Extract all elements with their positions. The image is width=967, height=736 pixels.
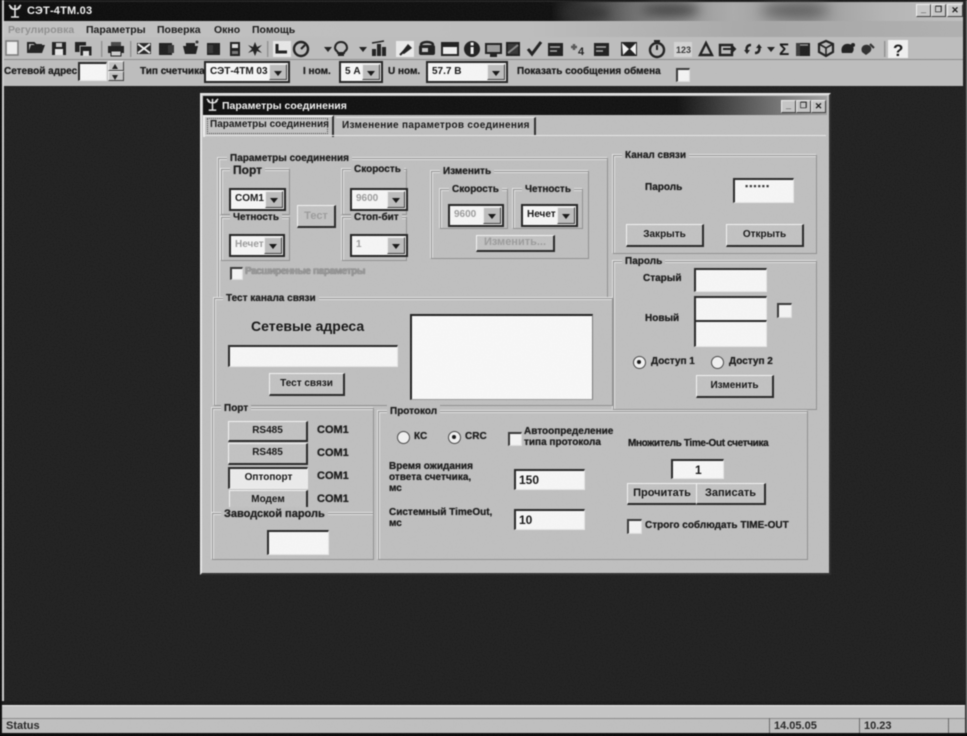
- svg-text:Σ: Σ: [779, 40, 789, 59]
- svg-text:4: 4: [578, 46, 585, 58]
- svg-text:123: 123: [676, 45, 691, 55]
- svg-text:?: ?: [893, 41, 903, 59]
